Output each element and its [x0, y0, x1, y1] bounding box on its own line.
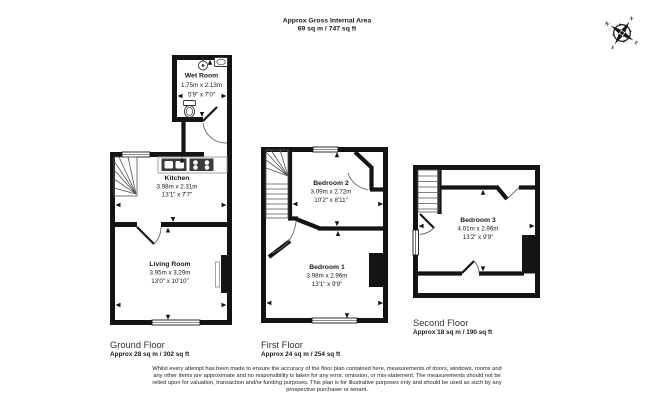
bedroom3-door-arc — [474, 261, 479, 273]
ground-floor-title: Ground Floor — [110, 340, 165, 350]
bedroom3-metric: 4.01m x 2.96m — [458, 226, 499, 233]
bedroom2-metric: 3.09m x 2.72m — [311, 189, 352, 196]
bedroom3-door — [462, 261, 474, 273]
chimney-breast — [221, 255, 230, 293]
measure-arrow — [116, 203, 121, 207]
wet-room-imperial: 5'9" x 7'0" — [188, 92, 215, 99]
bedroom1-imperial: 13'1" x 9'9" — [312, 281, 343, 288]
second-floor-title: Second Floor — [413, 318, 468, 328]
measure-arrow — [171, 217, 175, 222]
living-room-window — [152, 320, 200, 325]
stairs-icon-second — [418, 170, 439, 212]
measure-arrow — [293, 202, 298, 206]
measure-arrow — [335, 221, 339, 226]
bedroom1-metric: 3.98m x 2.96m — [307, 273, 348, 280]
measure-arrow — [481, 266, 485, 271]
living-room-metric: 3.95m x 3.29m — [150, 270, 191, 277]
living-room-door — [137, 227, 154, 244]
floorplan-svg: Approx Gross Internal Area 69 sq m / 747… — [0, 0, 650, 402]
bedroom1-door-arc — [272, 222, 296, 253]
living-room-name: Living Room — [149, 261, 190, 268]
measure-arrow — [178, 94, 183, 98]
measure-arrow — [419, 224, 424, 228]
gross-area-title: Approx Gross Internal Area — [283, 18, 372, 25]
first-floor-plan: Bedroom 2 3.09m x 2.72m 10'2" x 8'11" Be… — [261, 147, 388, 358]
bedroom2-imperial: 10'2" x 8'11" — [314, 197, 347, 204]
kitchen-name: Kitchen — [165, 175, 190, 182]
bedroom2-door-arc — [348, 173, 368, 190]
stairs-icon-ground — [114, 157, 137, 196]
compass-w-label: W — [603, 21, 610, 28]
stairs-icon-first — [266, 150, 288, 218]
measure-arrow — [208, 60, 212, 65]
kitchen-counter — [158, 157, 227, 173]
dormer-window — [507, 188, 519, 200]
wet-room-door — [203, 107, 217, 121]
disclaimer-text: Whilst every attempt has been made to en… — [148, 366, 506, 394]
measure-arrow — [335, 152, 339, 157]
hob-icon — [190, 159, 214, 172]
measure-arrow — [166, 228, 170, 233]
radiator — [216, 262, 220, 287]
measure-arrow — [378, 301, 383, 305]
compass-e-label: E — [633, 41, 639, 47]
wet-room-name: Wet Room — [185, 73, 218, 80]
stairs-door-arc — [420, 228, 434, 235]
gross-area-value: 69 sq m / 747 sq ft — [298, 26, 357, 33]
measure-arrow — [222, 94, 227, 98]
header: Approx Gross Internal Area 69 sq m / 747… — [283, 18, 372, 33]
measure-arrow — [116, 303, 121, 307]
second-floor-plan: Bedroom 3 4.01m x 2.96m 13'2" x 9'9" Sec… — [413, 165, 540, 336]
measure-arrow — [378, 202, 383, 206]
living-room-imperial: 13'0" x 10'10" — [151, 278, 188, 285]
bedroom1-name: Bedroom 1 — [309, 264, 345, 271]
bedroom3-imperial: 13'2" x 9'9" — [463, 234, 494, 241]
living-room-door-arc — [154, 227, 161, 244]
compass-rose: N E S W — [594, 7, 649, 62]
first-floor-title: First Floor — [261, 340, 303, 350]
measure-arrow — [166, 315, 170, 320]
ground-floor-plan: Wet Room 1.75m x 2.13m 5'9" x 7'0" Kitch… — [110, 55, 232, 358]
second-floor-area: Approx 18 sq m / 190 sq ft — [413, 329, 493, 336]
chimney-breast — [369, 253, 384, 287]
chimney-breast — [522, 235, 536, 274]
ground-floor-area: Approx 28 sq m / 302 sq ft — [110, 351, 190, 358]
first-floor-area: Approx 24 sq m / 254 sq ft — [261, 351, 341, 358]
basin-icon — [215, 58, 228, 67]
measure-arrow — [200, 112, 204, 117]
bedroom3-window — [413, 230, 419, 255]
bedroom3-name: Bedroom 3 — [460, 217, 496, 224]
compass-n-label: N — [628, 16, 634, 22]
bedroom1-window — [312, 318, 357, 323]
measure-arrow — [530, 224, 535, 228]
bedroom2-window — [313, 147, 338, 152]
bedroom2-name: Bedroom 2 — [313, 180, 349, 187]
compass-s-label: S — [609, 46, 614, 52]
measure-arrow — [222, 203, 227, 207]
kitchen-window — [122, 152, 150, 157]
wet-room-metric: 1.75m x 2.13m — [181, 82, 222, 89]
floorplan-page: Approx Gross Internal Area 69 sq m / 747… — [0, 0, 650, 402]
measure-arrow — [222, 303, 227, 307]
kitchen-imperial: 13'1" x 7'7" — [162, 192, 193, 199]
kitchen-door-arc — [203, 123, 227, 143]
kitchen-metric: 3.98m x 2.31m — [157, 184, 198, 191]
measure-arrow — [345, 313, 349, 318]
measure-arrow — [336, 231, 340, 236]
measure-arrow — [266, 301, 271, 305]
toilet-icon — [184, 101, 196, 118]
measure-arrow — [481, 190, 485, 195]
